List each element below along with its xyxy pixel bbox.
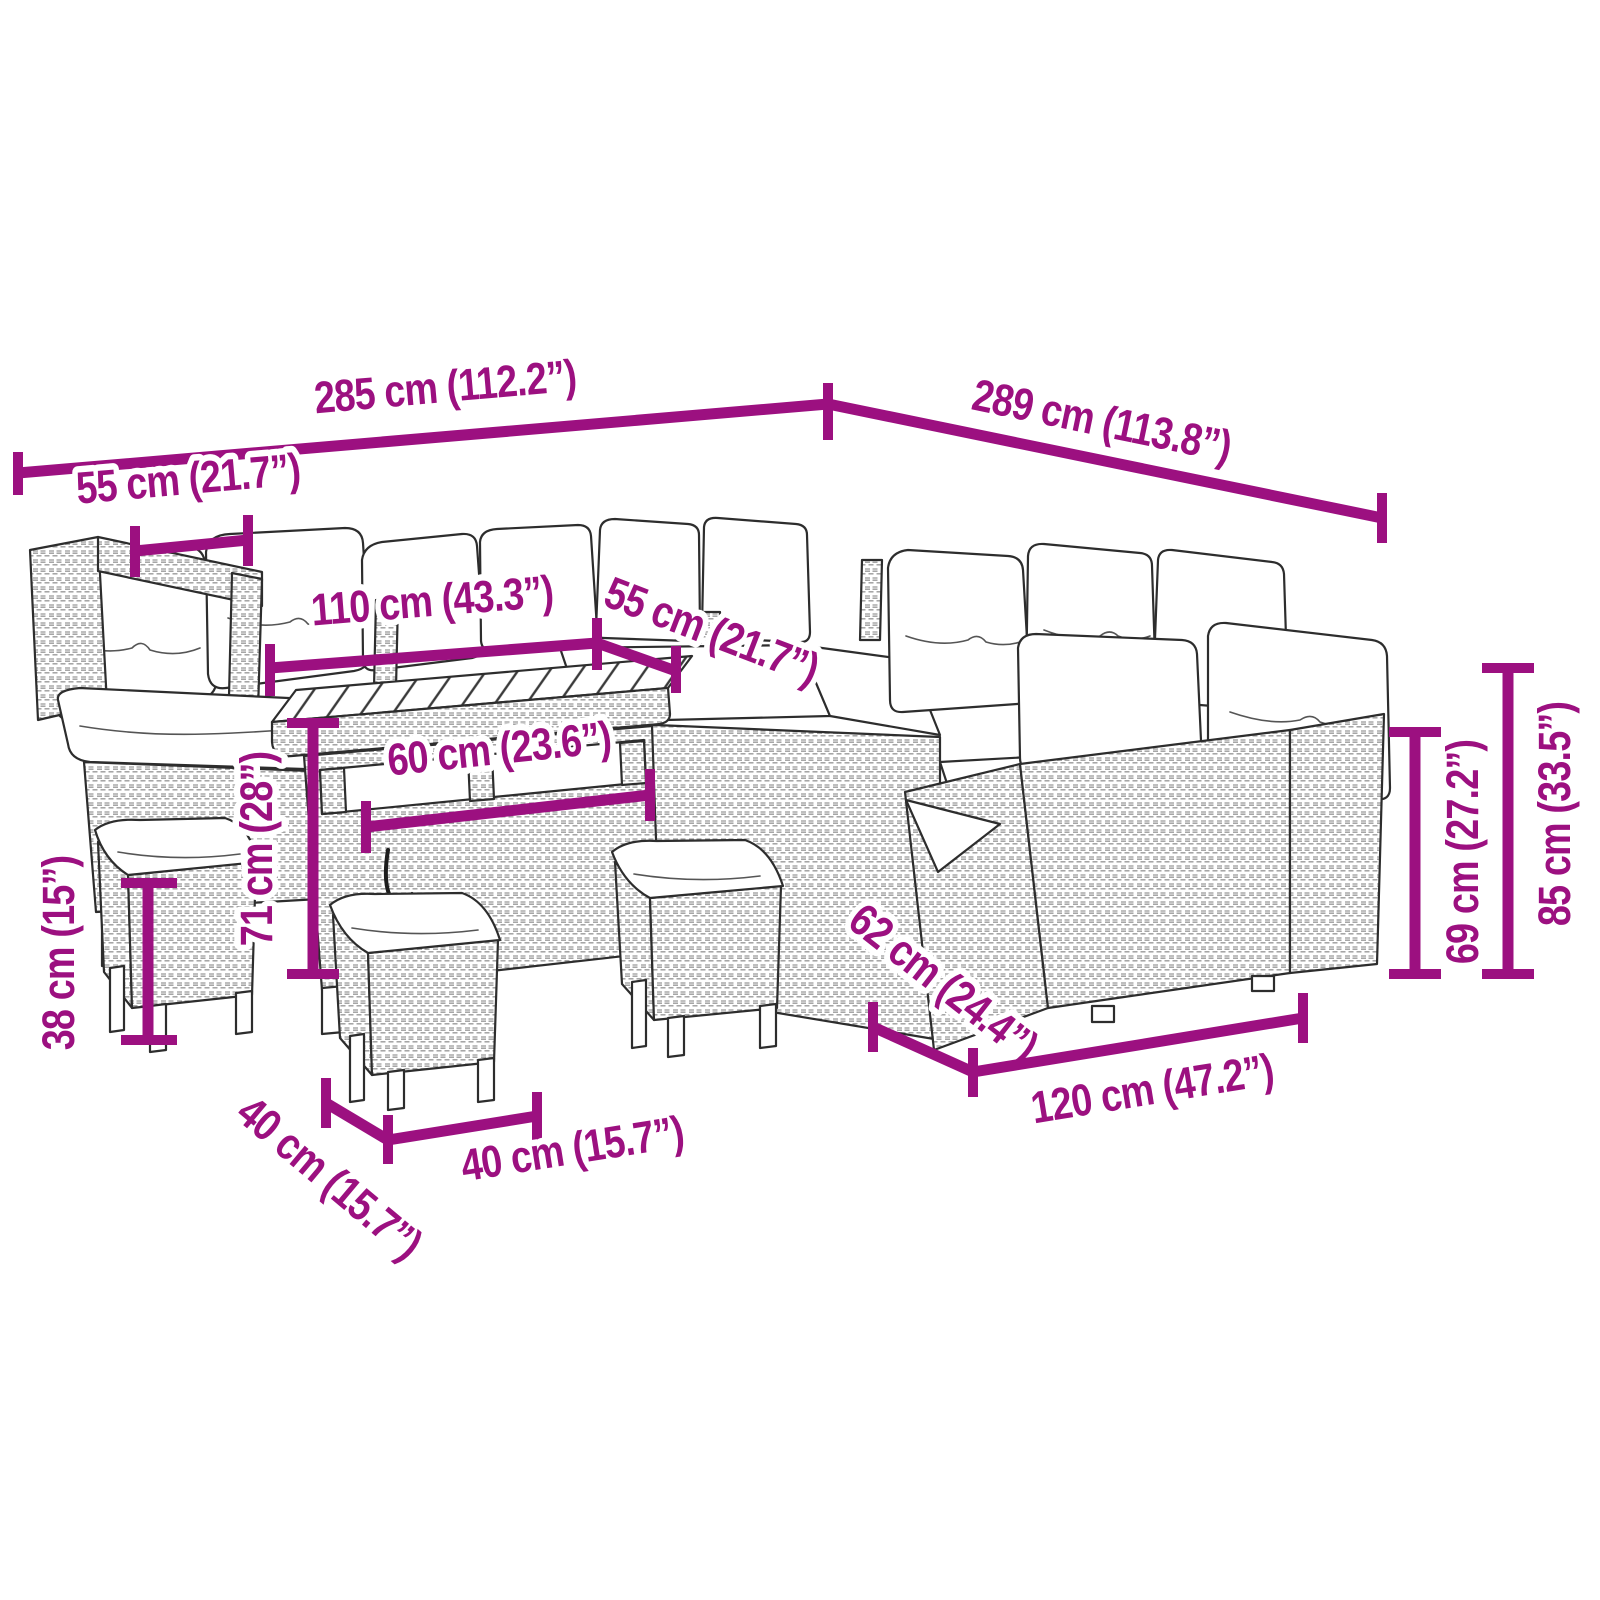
stool-front-face [368, 940, 498, 1075]
dimension-label: 55 cm (21.7”) [74, 443, 302, 513]
dim-total-height: 85 cm (33.5”) [1482, 668, 1580, 974]
table-post [320, 768, 346, 814]
dimension-diagram-page: 285 cm (112.2”) 289 cm (113.8”) 55 cm (2… [0, 0, 1600, 1600]
sofa-front-face [1020, 730, 1290, 1008]
dimension-label: 285 cm (112.2”) [312, 350, 578, 424]
dim-stool-width: 40 cm (15.7”) [388, 1092, 687, 1191]
back-pillow [888, 550, 1030, 712]
dimension-label: 69 cm (27.2”) [1437, 740, 1488, 964]
dimension-label: 38 cm (15”) [33, 856, 84, 1051]
stool-cushion [612, 840, 783, 898]
stool [330, 893, 500, 1110]
dim-backrest-height: 69 cm (27.2”) [1389, 732, 1488, 974]
stool [612, 840, 783, 1057]
dim-overall-depth: 289 cm (113.8”) [828, 369, 1382, 543]
dimension-label: 85 cm (33.5”) [1529, 702, 1580, 926]
table-post [620, 741, 646, 785]
dimension-label: 71 cm (28”) [231, 752, 282, 947]
dimension-diagram: 285 cm (112.2”) 289 cm (113.8”) 55 cm (2… [0, 0, 1600, 1600]
frame-peg [860, 560, 882, 640]
stool-front-face [650, 886, 781, 1020]
dimension-line [326, 1103, 388, 1140]
sofa-armrest [1290, 714, 1384, 973]
